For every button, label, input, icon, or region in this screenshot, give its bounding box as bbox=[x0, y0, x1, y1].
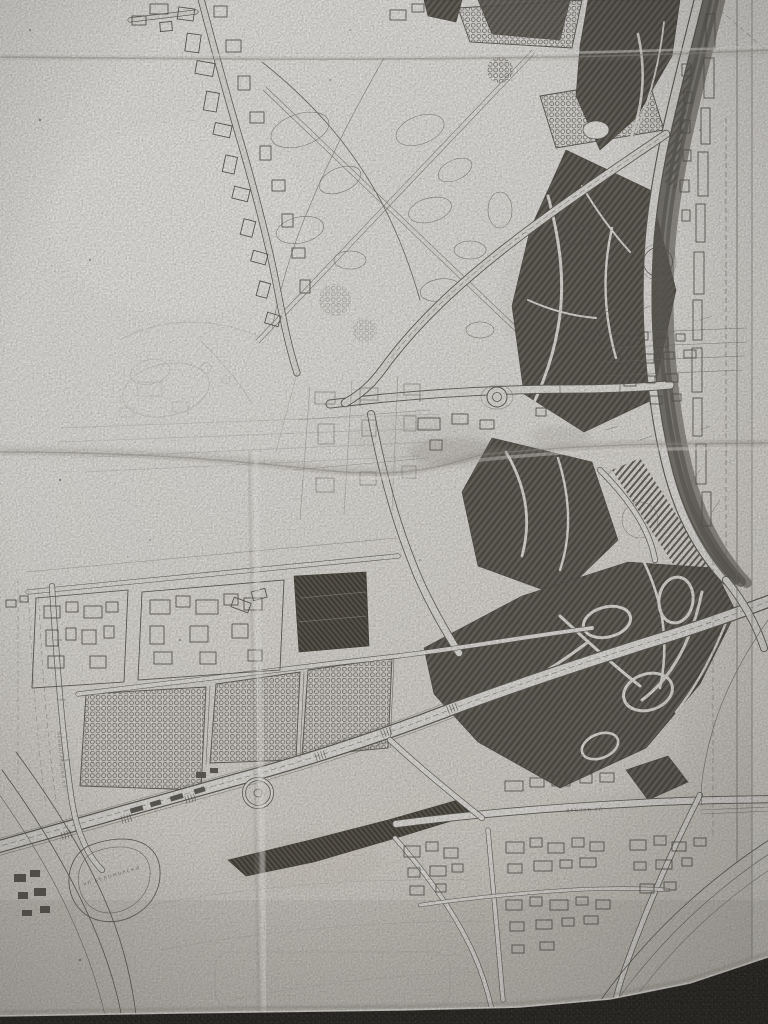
map-photograph: ЛЕНИНГРАДСКА УЛ УЛ БЕЛОМОРСКИ ДРЪЗКИ УЛ bbox=[0, 0, 768, 1024]
folded-map-sheet: ЛЕНИНГРАДСКА УЛ УЛ БЕЛОМОРСКИ ДРЪЗКИ УЛ bbox=[0, 0, 768, 1024]
photo-grain bbox=[0, 0, 768, 1024]
